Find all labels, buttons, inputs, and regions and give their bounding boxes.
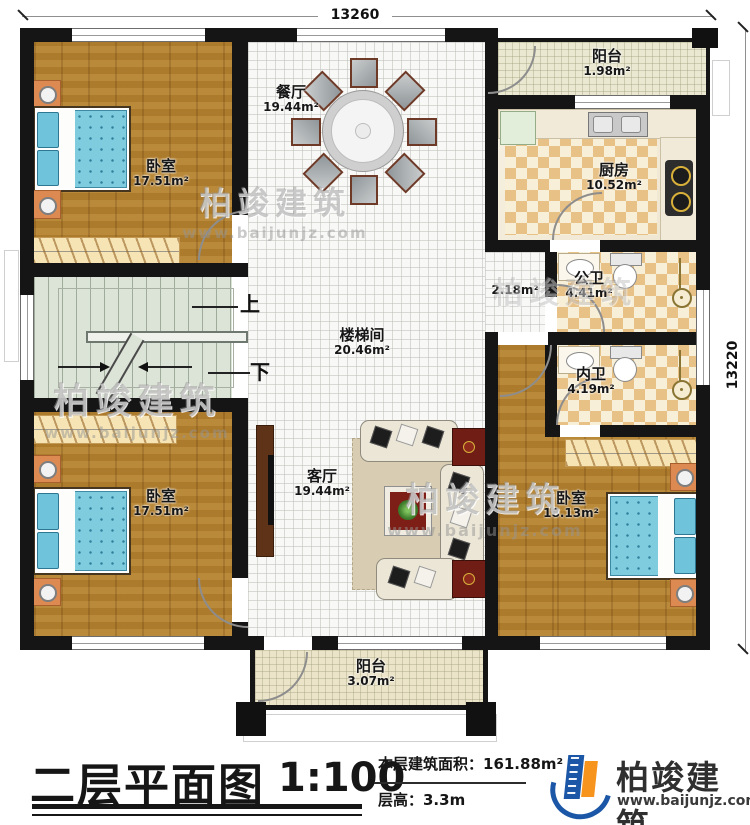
nightstand: [33, 455, 61, 483]
bed-sheet: [658, 496, 674, 576]
room-name: 客厅: [307, 468, 337, 485]
pillow-icon: [674, 537, 696, 574]
room-label-dining: 餐厅 19.44m²: [236, 84, 346, 114]
nightstand: [670, 579, 698, 607]
burner-icon: [671, 166, 691, 186]
room-area: 3.07m²: [347, 675, 394, 688]
room-area: 18.13m²: [543, 507, 599, 520]
stove-icon: [665, 160, 693, 216]
room-name: 楼梯间: [339, 327, 384, 344]
dining-chair: [350, 175, 378, 205]
wall-segment: [485, 109, 498, 252]
lamp-icon: [39, 86, 57, 104]
lamp-icon: [39, 584, 57, 602]
window: [72, 28, 205, 42]
lamp-icon: [39, 461, 57, 479]
stair-down-line: [208, 372, 250, 374]
wall-segment: [485, 95, 575, 109]
room-name: 卧室: [146, 158, 176, 175]
nightstand: [33, 190, 61, 219]
wall-segment: [20, 263, 248, 277]
fridge: [500, 111, 536, 145]
title-block: 二层平面图 1:100 本层建筑面积：161.88m² 层高：3.3m 柏竣建筑…: [0, 745, 750, 825]
room-name: 内卫: [576, 366, 606, 383]
window: [575, 95, 670, 109]
wall-segment: [205, 28, 297, 42]
room-area: 17.51m²: [133, 175, 189, 188]
hall-corner-area-label: 2.18m²: [460, 284, 570, 297]
stair-handrail: [86, 331, 248, 343]
wardrobe: [33, 415, 177, 444]
window: [696, 290, 710, 385]
table-knob: [463, 441, 475, 453]
window: [72, 636, 204, 650]
column: [466, 702, 496, 736]
room-name: 卧室: [556, 490, 586, 507]
stair-up-line: [192, 306, 238, 308]
stair-arrow-line: [148, 366, 192, 368]
shower-dot: [680, 388, 683, 391]
stair-arrow-line: [58, 366, 100, 368]
room-area: 19.44m²: [263, 101, 319, 114]
room-name: 厨房: [599, 162, 629, 179]
balcony-parapet: [496, 38, 710, 42]
shower-cord: [679, 258, 681, 292]
shower-head-icon: [672, 380, 692, 400]
room-label-bedroom-bl: 卧室 17.51m²: [106, 488, 216, 518]
room-label-bedroom-br: 卧室 18.13m²: [516, 490, 626, 520]
wall-segment: [600, 240, 696, 252]
wall-segment: [485, 240, 550, 252]
lamp-icon: [39, 197, 57, 215]
dimension-top: 13260: [318, 6, 392, 24]
bed-sheet: [59, 491, 75, 571]
shower-dot: [680, 296, 683, 299]
room-name: 阳台: [592, 48, 622, 65]
stair-down-label: 下: [250, 356, 270, 385]
dimension-tick: [17, 9, 28, 20]
lamp-icon: [676, 585, 694, 603]
wall-segment: [20, 398, 248, 412]
wall-segment: [545, 425, 560, 437]
room-label-balcony-bottom: 阳台 3.07m²: [316, 658, 426, 688]
dining-chair: [407, 118, 437, 146]
room-area: 2.18m²: [491, 284, 538, 297]
wall-segment: [485, 332, 498, 650]
room-label-bedroom-tl: 卧室 17.51m²: [106, 158, 216, 188]
floor-height-text: 层高：3.3m: [378, 789, 465, 810]
column: [692, 28, 718, 48]
pillow-icon: [37, 532, 59, 569]
extension-line: [712, 60, 730, 116]
wall-segment: [462, 636, 540, 650]
wall-segment: [232, 42, 248, 215]
wall-segment: [20, 380, 34, 650]
dimension-tick: [705, 9, 716, 20]
stair-arrow-right: [100, 362, 110, 372]
stair-up-label: 上: [240, 288, 260, 317]
title-underline: [32, 804, 362, 809]
extension-line: [243, 714, 497, 742]
wardrobe: [33, 237, 180, 265]
dining-table-center: [355, 123, 371, 139]
room-label-stairwell: 楼梯间 20.46m²: [307, 327, 417, 357]
wall-segment: [20, 636, 72, 650]
window: [20, 295, 34, 380]
stair-arrow-left: [138, 362, 148, 372]
room-label-private-bath: 内卫 4.19m²: [536, 366, 646, 396]
dimension-line-right: [745, 28, 746, 652]
end-table: [452, 560, 486, 598]
nightstand: [670, 463, 698, 491]
shower-cord: [679, 350, 681, 384]
wall-segment: [20, 28, 34, 295]
wall-segment: [312, 636, 338, 650]
room-label-living: 客厅 19.44m²: [267, 468, 377, 498]
balcony-parapet: [250, 650, 255, 710]
brand-name: 柏竣建筑: [616, 751, 750, 825]
room-area: 17.51m²: [133, 505, 189, 518]
title-divider: [374, 782, 526, 784]
room-label-kitchen: 厨房 10.52m²: [559, 162, 669, 192]
floor-area-text: 本层建筑面积：161.88m²: [378, 753, 563, 774]
bed-sheet: [59, 110, 75, 188]
dimension-right: 13220: [724, 330, 742, 400]
window: [540, 636, 666, 650]
brand-website: www.baijunjz.com: [617, 793, 750, 809]
brand-logo-icon: [550, 753, 612, 815]
dining-chair: [291, 118, 321, 146]
wall-segment: [670, 95, 710, 109]
room-area: 19.44m²: [294, 485, 350, 498]
room-name: 阳台: [356, 658, 386, 675]
kitchen-sink: [588, 112, 648, 137]
wall-segment: [696, 109, 710, 290]
room-area: 10.52m²: [586, 179, 642, 192]
wall-segment: [600, 425, 696, 437]
extension-line: [4, 250, 19, 362]
balcony-parapet: [483, 650, 488, 710]
table-knob: [463, 573, 475, 585]
room-name: 卧室: [146, 488, 176, 505]
nightstand: [33, 80, 61, 107]
room-area: 20.46m²: [334, 344, 390, 357]
nightstand: [33, 578, 61, 606]
balcony-parapet: [250, 705, 488, 710]
wall-segment: [20, 28, 72, 42]
wall-segment: [548, 332, 696, 345]
room-area: 1.98m²: [583, 65, 630, 78]
window: [297, 28, 445, 42]
room-name: 餐厅: [276, 84, 306, 101]
lamp-icon: [676, 469, 694, 487]
wall-segment: [232, 412, 248, 578]
wall-segment: [666, 636, 710, 650]
room-area: 4.41m²: [565, 287, 612, 300]
room-name: 公卫: [574, 270, 604, 287]
sink-basin: [593, 116, 613, 133]
dimension-tick: [737, 21, 748, 32]
pillow-icon: [674, 498, 696, 535]
end-table: [452, 428, 486, 466]
pillow-icon: [37, 150, 59, 186]
floor-plan: 13260 13220: [0, 0, 750, 825]
title-underline: [32, 814, 362, 816]
dimension-tick: [737, 643, 748, 654]
wall-segment: [696, 385, 710, 650]
pillow-icon: [37, 112, 59, 148]
burner-icon: [671, 192, 691, 212]
pillow-icon: [37, 493, 59, 530]
sliding-door-window: [338, 636, 462, 650]
dining-chair: [350, 58, 378, 88]
column: [236, 702, 266, 736]
room-area: 4.19m²: [567, 383, 614, 396]
shower-head-icon: [672, 288, 692, 308]
sink-basin: [621, 116, 641, 133]
room-label-balcony-top: 阳台 1.98m²: [552, 48, 662, 78]
plant-icon: [398, 500, 418, 520]
